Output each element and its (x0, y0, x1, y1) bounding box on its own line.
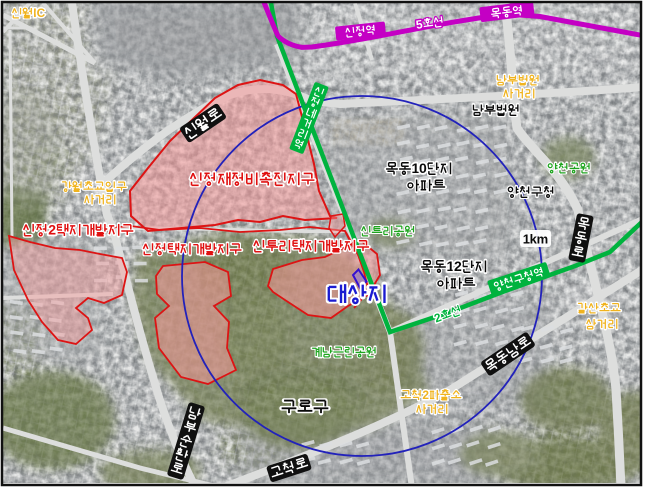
svg-text:m: m (537, 231, 549, 246)
svg-text:2: 2 (48, 222, 56, 238)
svg-text:0: 0 (419, 160, 427, 176)
svg-text:2: 2 (422, 388, 429, 402)
svg-text:2: 2 (454, 258, 462, 274)
svg-text:C: C (37, 6, 46, 20)
